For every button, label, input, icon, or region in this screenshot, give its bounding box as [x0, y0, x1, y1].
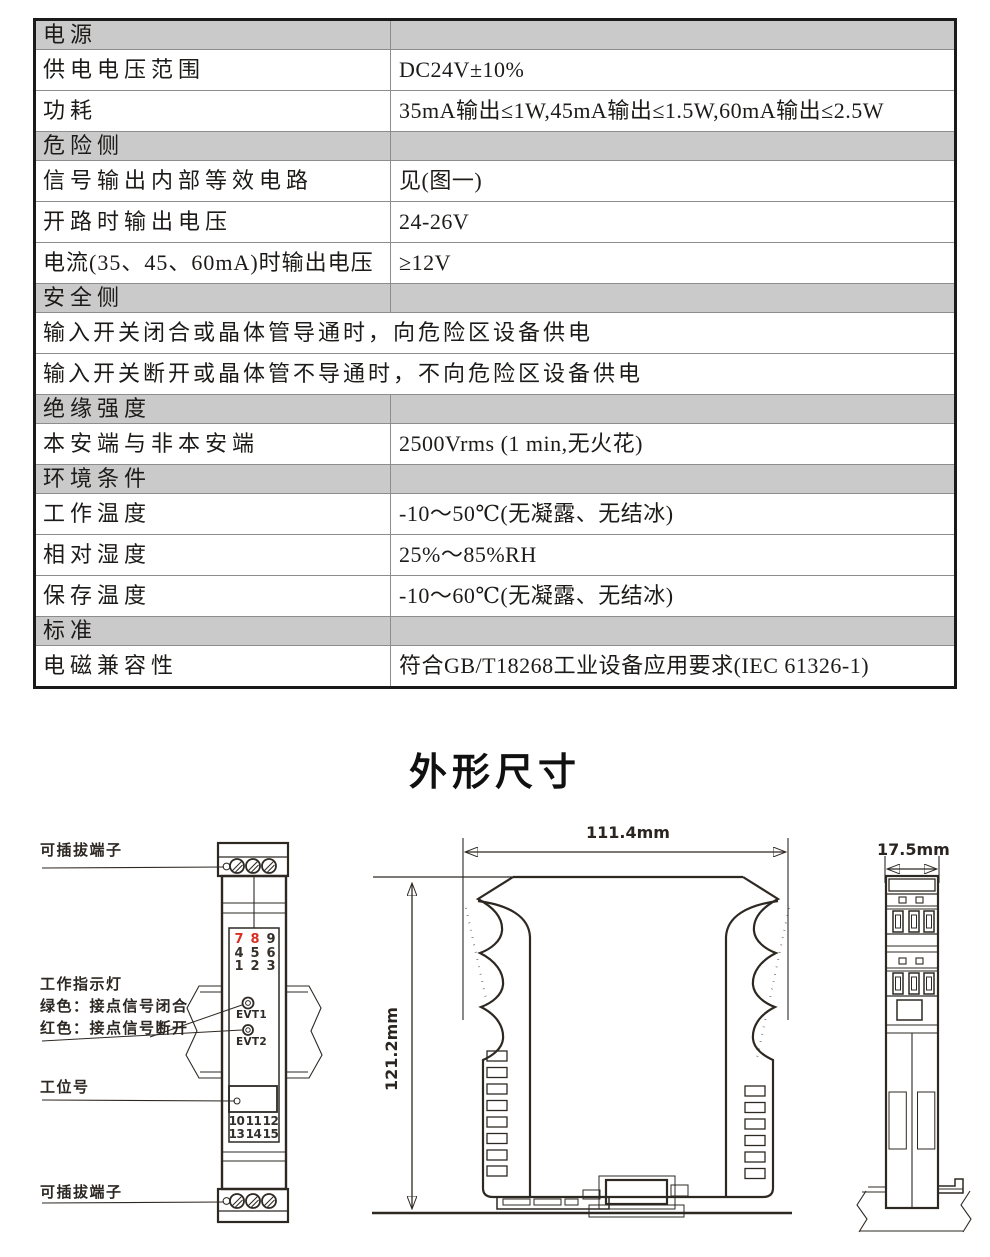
table-row: 相对湿度25%～85%RH	[36, 534, 954, 575]
table-row: 输入开关断开或晶体管不导通时，不向危险区设备供电	[36, 353, 954, 394]
table-row: 供电电压范围DC24V±10%	[36, 49, 954, 90]
section-label: 危险侧	[36, 132, 391, 160]
section-label: 绝缘强度	[36, 395, 391, 423]
row-value: 符合GB/T18268工业设备应用要求(IEC 61326-1)	[391, 646, 954, 686]
table-section-row: 绝缘强度	[36, 394, 954, 423]
section-label: 标准	[36, 617, 391, 645]
table-section-row: 危险侧	[36, 131, 954, 160]
section-label: 电源	[36, 21, 391, 49]
section-label: 环境条件	[36, 465, 391, 493]
end-view-drawing	[857, 856, 971, 1232]
full-row-text: 输入开关断开或晶体管不导通时，不向危险区设备供电	[36, 354, 954, 394]
table-section-row: 安全侧	[36, 283, 954, 312]
row-value: -10～60℃(无凝露、无结冰)	[391, 576, 954, 616]
table-section-row: 标准	[36, 616, 954, 645]
section-empty-cell	[391, 132, 954, 160]
row-key: 供电电压范围	[36, 50, 391, 90]
row-value: -10～50℃(无凝露、无结冰)	[391, 494, 954, 534]
row-key: 信号输出内部等效电路	[36, 161, 391, 201]
tag-number-box	[229, 1086, 277, 1112]
section-empty-cell	[391, 465, 954, 493]
vent-slots-right	[745, 1086, 765, 1179]
table-section-row: 环境条件	[36, 464, 954, 493]
spec-table: 电源供电电压范围DC24V±10%功耗35mA输出≤1W,45mA输出≤1.5W…	[33, 18, 957, 689]
vent-slots-left	[487, 1051, 507, 1176]
row-key: 本安端与非本安端	[36, 424, 391, 464]
datasheet-page: 电源供电电压范围DC24V±10%功耗35mA输出≤1W,45mA输出≤1.5W…	[0, 0, 990, 1257]
row-key: 工作温度	[36, 494, 391, 534]
table-row: 功耗35mA输出≤1W,45mA输出≤1.5W,60mA输出≤2.5W	[36, 90, 954, 131]
table-row: 信号输出内部等效电路见(图一)	[36, 160, 954, 201]
table-row: 保存温度-10～60℃(无凝露、无结冰)	[36, 575, 954, 616]
row-value: 2500Vrms (1 min,无火花)	[391, 424, 954, 464]
row-value: ≥12V	[391, 243, 954, 283]
table-section-row: 电源	[36, 21, 954, 49]
table-row: 本安端与非本安端2500Vrms (1 min,无火花)	[36, 423, 954, 464]
full-row-text: 输入开关闭合或晶体管导通时，向危险区设备供电	[36, 313, 954, 353]
outline-dimensions-title: 外形尺寸	[0, 750, 990, 794]
row-value: 25%～85%RH	[391, 535, 954, 575]
section-label: 安全侧	[36, 284, 391, 312]
row-key: 电流(35、45、60mA)时输出电压	[36, 243, 391, 283]
front-view-drawing	[42, 843, 322, 1222]
outline-drawing	[0, 800, 990, 1257]
table-row: 电流(35、45、60mA)时输出电压≥12V	[36, 242, 954, 283]
table-row: 开路时输出电压24-26V	[36, 201, 954, 242]
section-empty-cell	[391, 617, 954, 645]
row-key: 开路时输出电压	[36, 202, 391, 242]
row-key: 电磁兼容性	[36, 646, 391, 686]
row-value: 35mA输出≤1W,45mA输出≤1.5W,60mA输出≤2.5W	[391, 91, 954, 131]
table-row: 工作温度-10～50℃(无凝露、无结冰)	[36, 493, 954, 534]
section-empty-cell	[391, 395, 954, 423]
side-view-drawing	[372, 838, 792, 1217]
row-key: 保存温度	[36, 576, 391, 616]
row-value: 见(图一)	[391, 161, 954, 201]
row-value: DC24V±10%	[391, 50, 954, 90]
row-key: 相对湿度	[36, 535, 391, 575]
table-row: 电磁兼容性符合GB/T18268工业设备应用要求(IEC 61326-1)	[36, 645, 954, 686]
table-row: 输入开关闭合或晶体管导通时，向危险区设备供电	[36, 312, 954, 353]
row-value: 24-26V	[391, 202, 954, 242]
section-empty-cell	[391, 284, 954, 312]
row-key: 功耗	[36, 91, 391, 131]
section-empty-cell	[391, 21, 954, 49]
